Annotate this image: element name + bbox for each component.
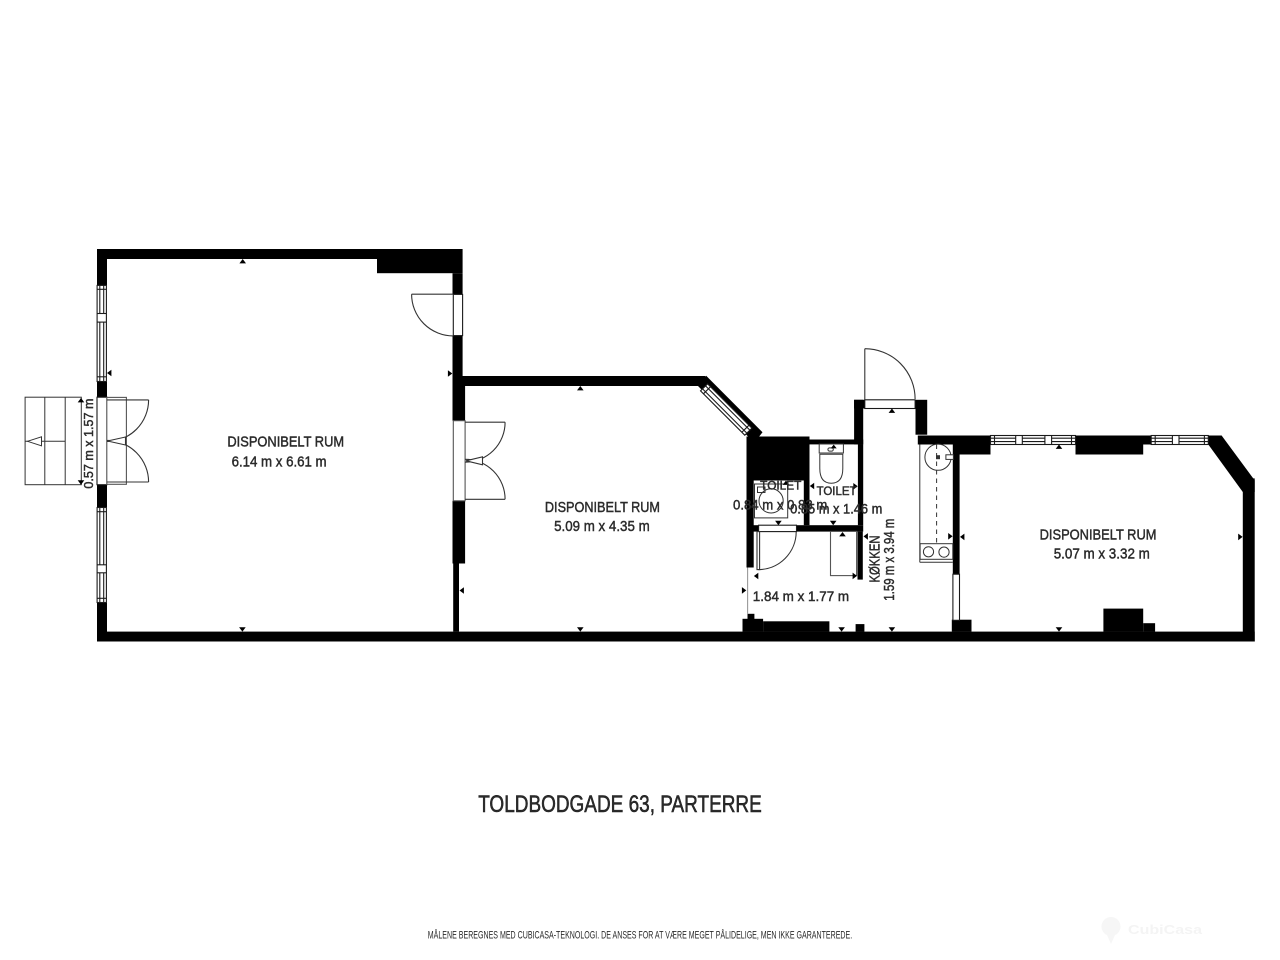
svg-text:DISPONIBELT RUM: DISPONIBELT RUM xyxy=(227,435,344,451)
svg-text:MÅLENE BEREGNES MED CUBICASA-T: MÅLENE BEREGNES MED CUBICASA-TEKNOLOGI. … xyxy=(428,929,852,942)
svg-text:0.85 m x 1.46 m: 0.85 m x 1.46 m xyxy=(790,502,882,517)
svg-text:6.14 m x 6.61 m: 6.14 m x 6.61 m xyxy=(232,454,327,470)
svg-text:1.59 m x 3.94 m: 1.59 m x 3.94 m xyxy=(882,519,898,601)
svg-text:DISPONIBELT RUM: DISPONIBELT RUM xyxy=(1040,528,1157,544)
svg-text:CubiCasa: CubiCasa xyxy=(1128,922,1203,937)
svg-text:TOILET: TOILET xyxy=(760,481,801,493)
svg-text:DISPONIBELT RUM: DISPONIBELT RUM xyxy=(545,500,660,516)
svg-text:TOILET: TOILET xyxy=(817,484,858,498)
svg-text:0.57 m x 1.57 m: 0.57 m x 1.57 m xyxy=(82,399,96,489)
svg-text:5.09 m x 4.35 m: 5.09 m x 4.35 m xyxy=(554,519,650,535)
svg-text:5.07 m x 3.32 m: 5.07 m x 3.32 m xyxy=(1054,547,1150,563)
svg-text:1.84 m x 1.77 m: 1.84 m x 1.77 m xyxy=(753,589,849,604)
svg-text:TOLDBODGADE 63, PARTERRE: TOLDBODGADE 63, PARTERRE xyxy=(478,791,762,818)
